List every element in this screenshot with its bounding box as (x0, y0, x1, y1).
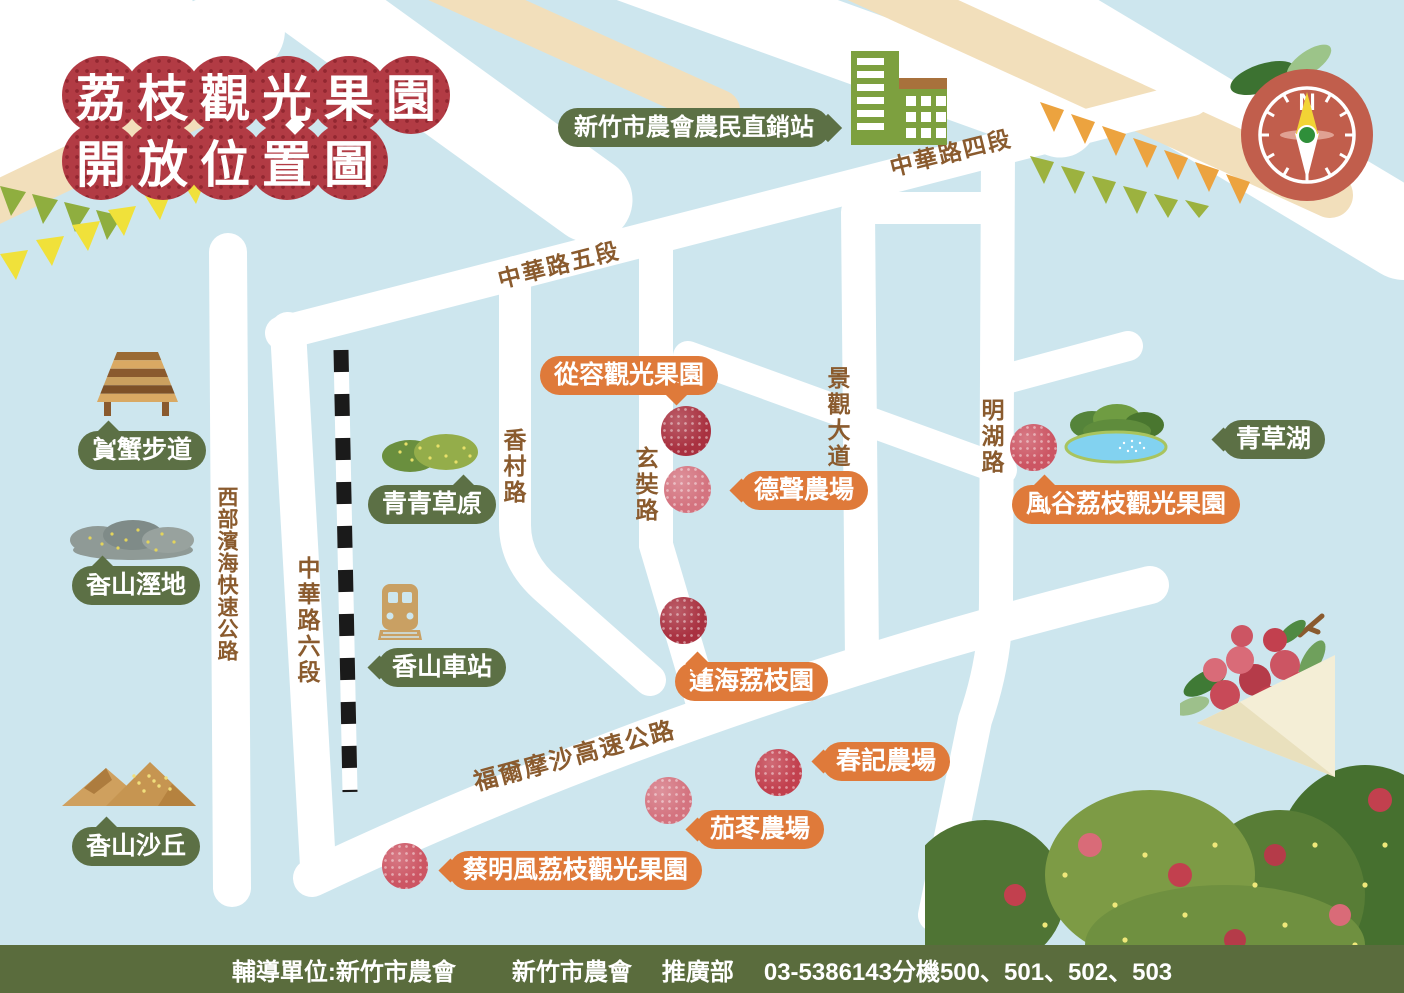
lychee-marker-qiedong (645, 777, 692, 824)
landmark-pill-crab-trail: 賞蟹步道 (78, 431, 206, 470)
lychee-marker-fenggu (1010, 424, 1057, 471)
road-label-xuanzang: 玄奘路 (628, 446, 662, 524)
lake-icon (1062, 403, 1170, 465)
orchard-label: 蔡明風荔枝觀光果園 (463, 856, 688, 884)
market-building-icon (843, 48, 953, 148)
grassland-icon (380, 428, 482, 474)
lychee-marker-chunji (755, 749, 802, 796)
lychee-bouquet-decoration (1180, 610, 1350, 795)
title-char: 園 (372, 56, 450, 134)
footer-dept: 推廣部 (662, 952, 734, 987)
lychee-orchard-map-poster: 中華路四段 中華路五段 中華路六段 西部濱海快速公路 香村路 玄奘路 景觀大道 … (0, 0, 1404, 993)
landmark-label: 香山沙丘 (86, 832, 186, 860)
orchard-label: 蓮海荔枝園 (689, 667, 814, 695)
poster-title: 荔枝觀光果園 開放位置圖 (62, 56, 434, 200)
road-label-west-coast: 西部濱海快速公路 (211, 486, 241, 662)
landmark-pill-lake: 青草湖 (1222, 420, 1325, 459)
market-pill: 新竹市農會農民直銷站 (558, 108, 830, 147)
landmark-pill-dunes: 香山沙丘 (72, 827, 200, 866)
road-jingguan (858, 212, 862, 660)
lychee-marker-desheng (664, 466, 711, 513)
orchard-label: 春記農場 (836, 747, 936, 775)
orchard-label: 風谷荔枝觀光果園 (1026, 490, 1226, 518)
landmark-pill-wetland: 香山溼地 (72, 566, 200, 605)
railway-line (341, 350, 350, 792)
orchard-pill-congrong: 從容觀光果園 (540, 356, 718, 395)
road-label-minghu: 明湖路 (974, 398, 1008, 476)
road-lake-stub (1002, 346, 1128, 380)
orchard-label: 從容觀光果園 (554, 361, 704, 389)
landmark-pill-grassland: 青青草原 (368, 485, 496, 524)
orchard-pill-desheng: 德聲農場 (740, 471, 868, 510)
sand-dune-icon (54, 758, 200, 810)
boardwalk-icon (90, 350, 185, 420)
wetland-icon (68, 512, 198, 562)
lychee-marker-lianhai (660, 597, 707, 644)
footer-unit: 輔導單位:新竹市農會 (232, 952, 456, 987)
poster-title-line2: 開放位置圖 (62, 122, 434, 200)
compass-icon: N (1225, 40, 1380, 210)
orchard-pill-fenggu: 風谷荔枝觀光果園 (1012, 485, 1240, 524)
market-label: 新竹市農會農民直銷站 (574, 114, 814, 141)
landmark-pill-station: 香山車站 (378, 648, 506, 687)
train-station-icon (378, 582, 422, 644)
road-label-xiangcun: 香村路 (496, 428, 530, 506)
orchard-pill-lianhai: 蓮海荔枝園 (675, 662, 828, 701)
title-char: 圖 (310, 122, 388, 200)
orchard-label: 德聲農場 (754, 476, 854, 504)
footer-bar: 輔導單位:新竹市農會 新竹市農會 推廣部 03-5386143分機500、501… (0, 945, 1404, 993)
road-label-zhonghua6: 中華路六段 (290, 556, 324, 686)
orchard-label: 茄苳農場 (710, 815, 810, 843)
orchard-pill-caimingfeng: 蔡明風荔枝觀光果園 (449, 851, 702, 890)
landmark-label: 青草湖 (1236, 425, 1311, 453)
footer-phone: 03-5386143分機500、501、502、503 (764, 952, 1172, 987)
lychee-marker-caimingfeng (382, 843, 428, 889)
footer-org: 新竹市農會 (512, 952, 632, 987)
road-label-jingguan: 景觀大道 (820, 366, 854, 470)
landmark-label: 香山車站 (392, 653, 492, 681)
orchard-pill-qiedong: 茄苳農場 (696, 810, 824, 849)
lychee-marker-congrong (661, 406, 711, 456)
